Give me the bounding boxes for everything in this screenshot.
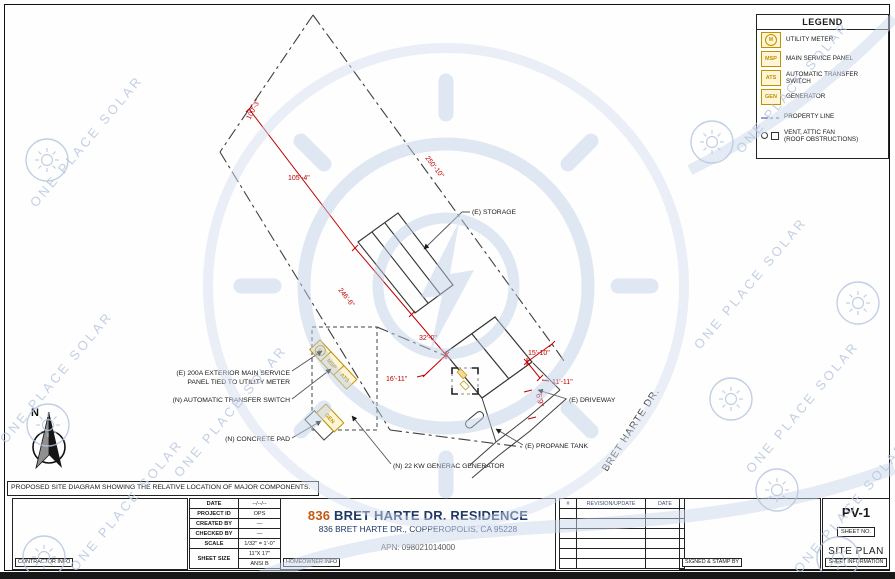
legend-item-ats: ATS AUTOMATIC TRANSFERSWITCH <box>757 68 888 87</box>
legend-item-utility-meter: M UTILITY METER <box>757 30 888 49</box>
legend-title: LEGEND <box>757 15 888 30</box>
sheet-name: SITE PLAN <box>823 546 889 557</box>
project-title-box: 836 BRET HARTE DR. RESIDENCE 836 BRET HA… <box>280 498 556 570</box>
revision-table: # REVISION/UPDATE DATE <box>559 498 685 569</box>
msp-icon: MSP <box>761 51 781 67</box>
diagram-note-banner: PROPOSED SITE DIAGRAM SHOWING THE RELATI… <box>7 481 319 496</box>
legend: LEGEND M UTILITY METER MSP MAIN SERVICE … <box>756 14 889 159</box>
homeowner-info-label: HOMEOWNER INFO <box>283 558 340 567</box>
generator-icon: GEN <box>761 89 781 105</box>
signed-stamp-label: SIGNED & STAMP BY <box>682 558 742 567</box>
legend-item-main-service-panel: MSP MAIN SERVICE PANEL <box>757 49 888 68</box>
sheet-no-label: SHEET NO. <box>837 527 875 537</box>
page-bottom-edge <box>0 572 895 579</box>
site-plan-sheet: M MSP ATS GEN <box>0 0 895 579</box>
utility-meter-icon: M <box>761 32 781 48</box>
project-info-table: DATE--/--/-- PROJECT IDOPS CREATED BY— C… <box>189 498 281 569</box>
legend-item-generator: GEN GENERATOR <box>757 87 888 106</box>
project-address: 836 BRET HARTE DR., COPPEROPOLIS, CA 952… <box>281 524 555 534</box>
contractor-info-label: CONTRACTOR INFO <box>15 558 73 567</box>
project-apn: APN: 098021014000 <box>281 543 555 552</box>
sheet-info-box: PV-1 SHEET NO. SITE PLAN SHEET INFORMATI… <box>822 498 890 570</box>
sheet-number: PV-1 <box>823 505 889 520</box>
ats-icon: ATS <box>761 70 781 86</box>
project-title: 836 BRET HARTE DR. RESIDENCE <box>281 508 555 523</box>
vent-attic-fan-icon <box>761 132 779 140</box>
legend-item-vent: VENT, ATTIC FAN(ROOF OBSTRUCTIONS) <box>757 127 888 144</box>
contractor-info-box: CONTRACTOR INFO <box>12 498 188 570</box>
sheet-information-label: SHEET INFORMATION <box>825 558 887 567</box>
legend-item-property-line: PROPERTY LINE <box>757 106 888 127</box>
property-line-icon <box>761 108 779 126</box>
signed-stamp-box: SIGNED & STAMP BY <box>679 498 821 570</box>
